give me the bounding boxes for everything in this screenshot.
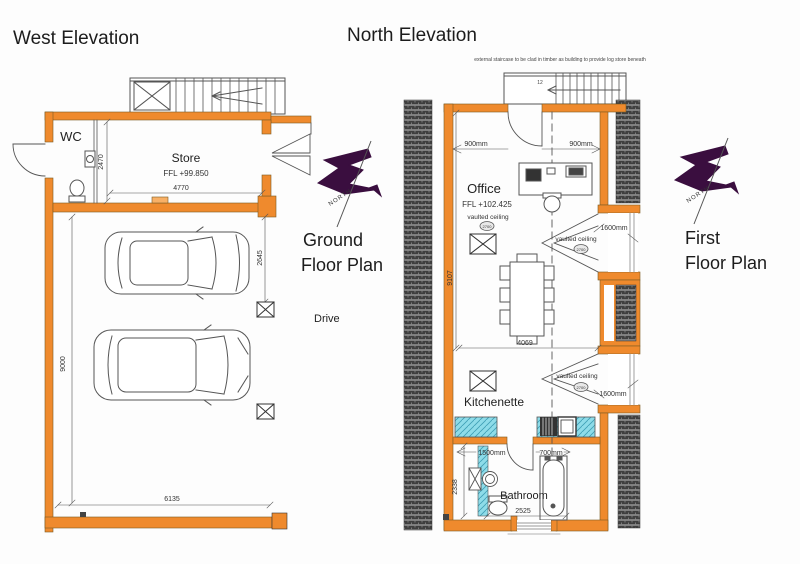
dim-plan-width: 6135 — [164, 496, 180, 503]
dim-room-length: 9107 — [447, 270, 454, 286]
drawing: West Elevation North Elevation — [0, 0, 800, 564]
dim-store-width: 4770 — [173, 185, 189, 192]
car-icon — [94, 325, 250, 405]
bathroom-room-label: Bathroom — [500, 490, 548, 502]
first-floor-plan: external staircase to be clad in timber … — [404, 57, 646, 534]
dim-store-depth: 2470 — [98, 154, 105, 170]
svg-text:2700: 2700 — [577, 385, 587, 390]
threshold-marker — [80, 512, 86, 517]
first-plan-title-line2: Floor Plan — [685, 253, 767, 273]
dim-table-width: 4069 — [517, 340, 533, 347]
staircase-note: external staircase to be clad in timber … — [474, 57, 646, 63]
ground-plan-title-line1: Ground — [303, 230, 363, 250]
dim-door-left: 900mm — [464, 141, 488, 148]
dim-dormer-top: 1600mm — [600, 225, 627, 232]
north-arrow-icon: NORTH — [675, 138, 738, 224]
store-double-door-icon — [272, 123, 311, 175]
column-marker-icon — [470, 371, 496, 391]
dim-bath-door: 1500mm — [478, 450, 505, 457]
west-elevation-title: West Elevation — [13, 28, 139, 49]
office-ffl-label: FFL +102.425 — [462, 200, 512, 209]
vaulted-ceiling-label: vaulted ceiling — [555, 236, 597, 243]
dining-table-icon — [500, 254, 554, 344]
desk-icon — [519, 163, 592, 195]
ground-floor-plan: WC Store FFL +99.850 4770 2470 2645 9000… — [13, 78, 311, 532]
vaulted-ceiling-label: vaulted ceiling — [467, 214, 509, 221]
bathtub-icon — [540, 456, 567, 520]
floor-plan-sheet: West Elevation North Elevation — [0, 0, 800, 564]
ground-plan-title-line2: Floor Plan — [301, 255, 383, 275]
staircase-icon — [130, 78, 285, 114]
svg-text:2700: 2700 — [483, 224, 493, 229]
vaulted-ceiling-label: vaulted ceiling — [556, 373, 598, 380]
ceiling-height-badge: 2700 — [480, 222, 494, 231]
north-elevation-title: North Elevation — [347, 25, 477, 46]
ceiling-height-badge: 2700 — [574, 383, 588, 392]
north-arrow-icon: NORTH — [318, 141, 381, 227]
stair-step-count: 12 — [537, 80, 543, 86]
store-ffl-label: FFL +99.850 — [163, 169, 209, 178]
ceiling-height-badge: 2700 — [574, 245, 588, 254]
entrance-door-arc — [13, 144, 45, 176]
kitchen-sink-icon — [558, 417, 576, 436]
basin-icon — [85, 151, 95, 167]
toilet-icon — [69, 180, 85, 202]
first-plan-title-line1: First — [685, 228, 720, 248]
wc-room-label: WC — [60, 129, 82, 144]
svg-text:2700: 2700 — [577, 247, 587, 252]
dim-bathroom-depth: 2338 — [452, 479, 459, 495]
store-room-label: Store — [172, 151, 201, 165]
chimney-hatch — [604, 285, 636, 341]
column-marker-icon — [257, 302, 274, 317]
office-chair-icon — [543, 193, 561, 212]
entrance-door-arc — [508, 112, 542, 146]
kitchenette-room-label: Kitchenette — [464, 395, 524, 409]
cooker-icon — [540, 417, 557, 436]
column-marker-icon — [470, 234, 496, 254]
drive-label: Drive — [314, 313, 340, 325]
dim-bay-depth: 2645 — [257, 250, 264, 266]
dim-plan-length: 9000 — [60, 356, 67, 372]
external-staircase-icon — [504, 73, 626, 104]
dim-door-right: 900mm — [569, 141, 593, 148]
bathroom-door-arc — [507, 444, 533, 470]
dim-bathroom-width: 2525 — [515, 508, 531, 515]
dim-bath-width: 700mm — [539, 450, 563, 457]
car-icon — [105, 227, 249, 299]
column-marker-icon — [257, 404, 274, 419]
dim-dormer-bottom: 1600mm — [599, 391, 626, 398]
threshold-marker — [443, 514, 449, 520]
office-room-label: Office — [467, 181, 501, 196]
